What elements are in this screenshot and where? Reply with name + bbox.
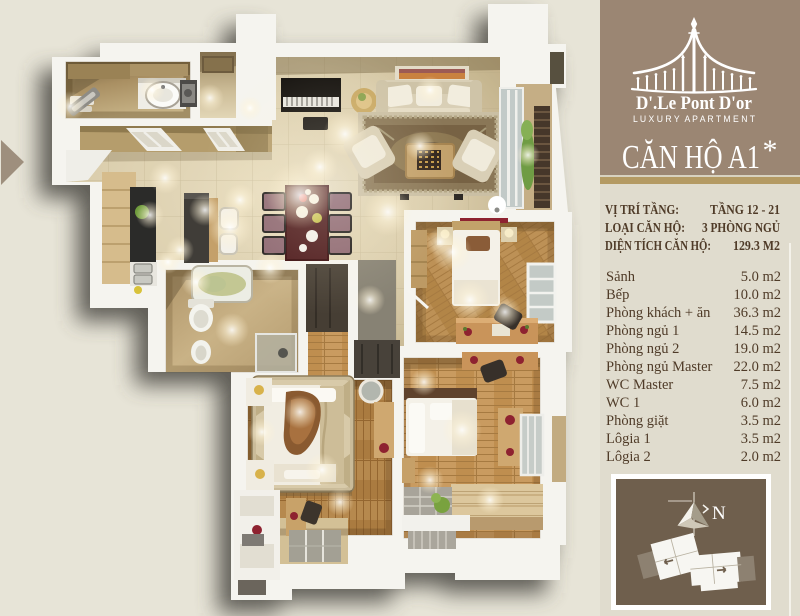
svg-text:10.0 m2: 10.0 m2 (733, 287, 781, 303)
svg-text:Phòng ngủ 2: Phòng ngủ 2 (606, 341, 679, 357)
svg-text:6.0 m2: 6.0 m2 (741, 395, 781, 411)
svg-text:WC 1: WC 1 (606, 395, 640, 411)
svg-text:D'.Le Pont D'or: D'.Le Pont D'or (636, 93, 753, 114)
svg-text:2.0 m2: 2.0 m2 (741, 449, 781, 465)
svg-text:Lôgia 1: Lôgia 1 (606, 431, 651, 447)
svg-text:Lôgia 2: Lôgia 2 (606, 449, 651, 465)
svg-text:N: N (712, 503, 726, 524)
svg-text:VỊ TRÍ TẦNG:: VỊ TRÍ TẦNG: (605, 202, 679, 217)
svg-text:Bếp: Bếp (606, 287, 629, 303)
svg-text:19.0 m2: 19.0 m2 (733, 341, 781, 357)
svg-text:129.3 M2: 129.3 M2 (733, 238, 780, 253)
svg-text:LOẠI CĂN HỘ:: LOẠI CĂN HỘ: (605, 220, 685, 235)
svg-text:3 PHÒNG NGỦ: 3 PHÒNG NGỦ (702, 220, 780, 235)
svg-text:Phòng ngủ 1: Phòng ngủ 1 (606, 323, 679, 339)
svg-text:L U X U R Y A P A R T M E N T: L U X U R Y A P A R T M E N T (633, 114, 755, 124)
svg-text:3.5 m2: 3.5 m2 (741, 431, 781, 447)
svg-text:7.5 m2: 7.5 m2 (741, 377, 781, 393)
svg-text:Phòng ngủ Master: Phòng ngủ Master (606, 359, 713, 375)
svg-text:TẦNG 12 - 21: TẦNG 12 - 21 (710, 202, 780, 217)
svg-text:Phòng khách + ăn: Phòng khách + ăn (606, 305, 711, 321)
svg-text:*: * (763, 134, 778, 167)
svg-text:Phòng giặt: Phòng giặt (606, 413, 668, 429)
svg-text:WC Master: WC Master (606, 377, 673, 393)
svg-text:36.3 m2: 36.3 m2 (733, 305, 781, 321)
svg-text:3.5 m2: 3.5 m2 (741, 413, 781, 429)
svg-text:CĂN HỘ A1: CĂN HỘ A1 (622, 138, 760, 176)
svg-text:14.5 m2: 14.5 m2 (733, 323, 781, 339)
svg-text:22.0 m2: 22.0 m2 (733, 359, 781, 375)
svg-text:5.0 m2: 5.0 m2 (741, 269, 781, 285)
svg-text:Sảnh: Sảnh (606, 269, 636, 285)
svg-text:DIỆN TÍCH CĂN HỘ:: DIỆN TÍCH CĂN HỘ: (605, 238, 711, 253)
